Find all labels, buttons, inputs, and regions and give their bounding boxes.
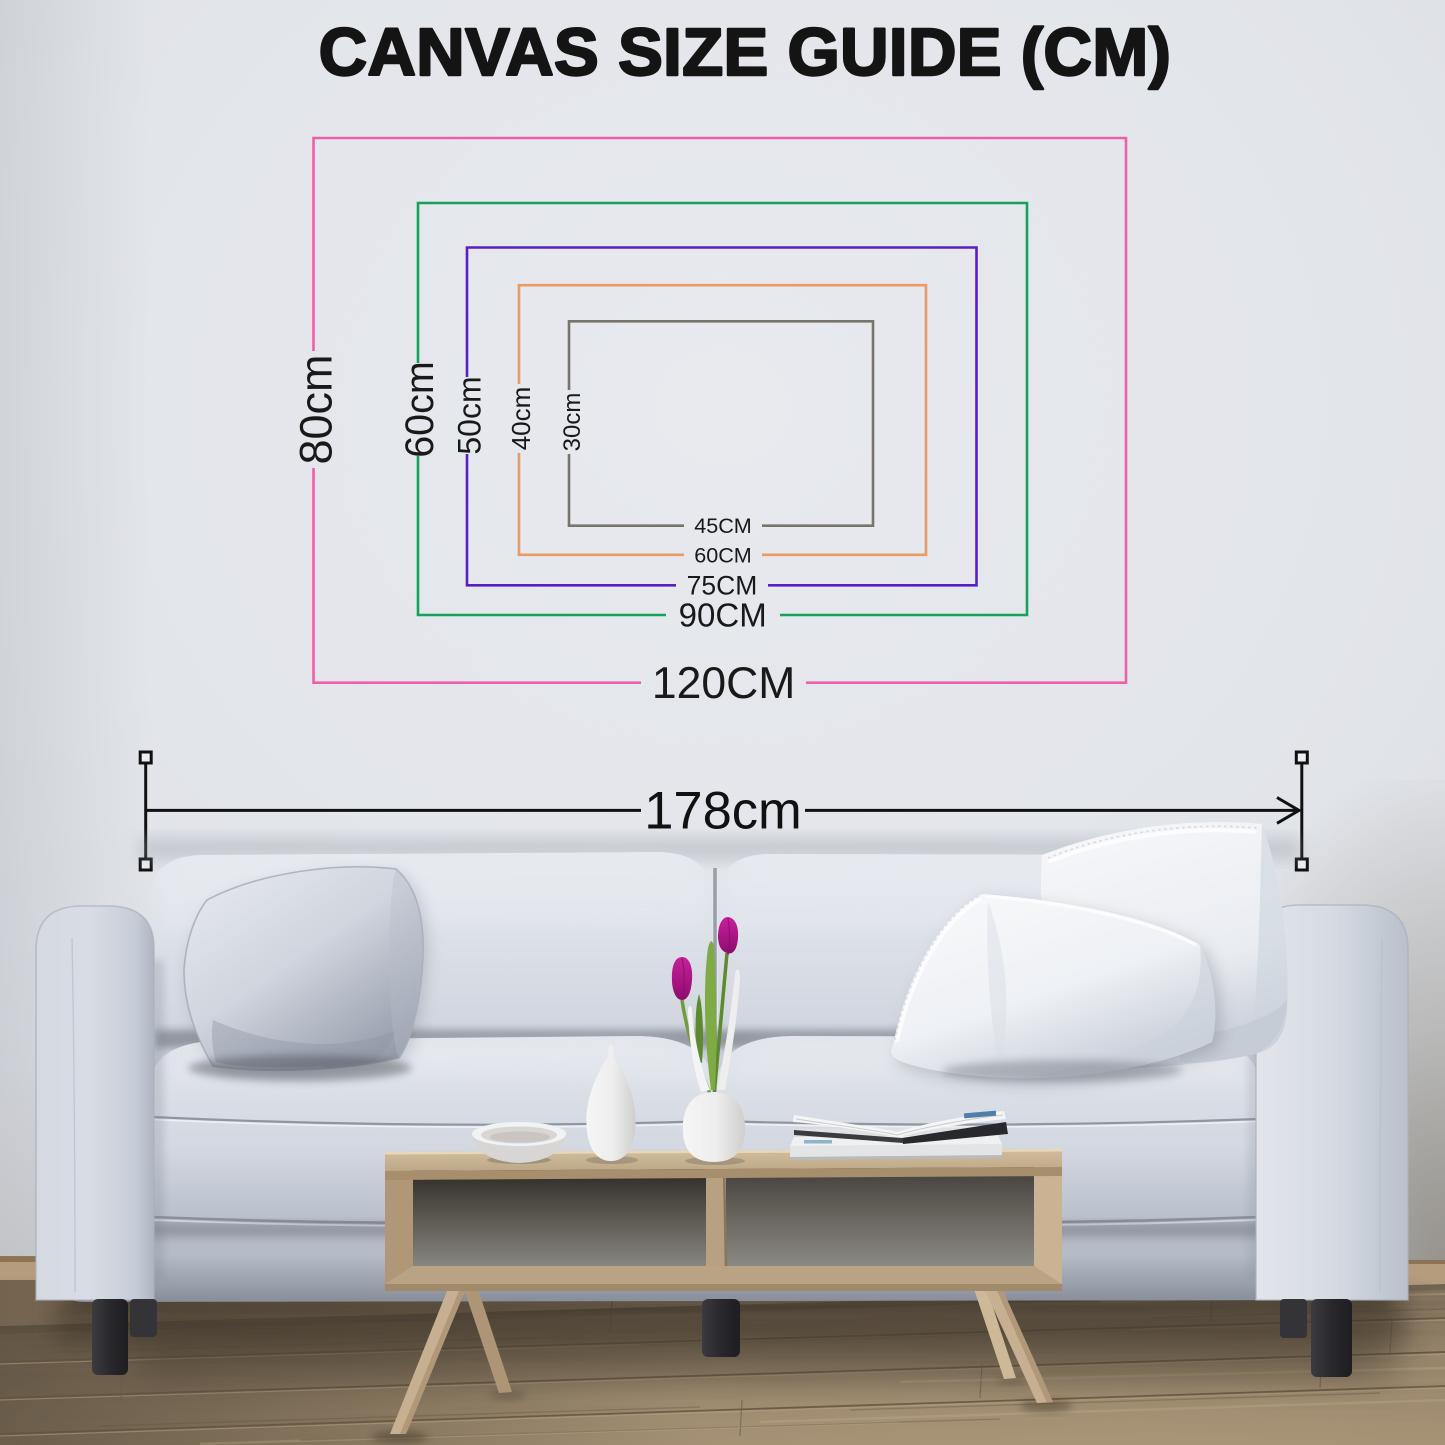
svg-text:60CM: 60CM [694,542,752,567]
svg-text:75CM: 75CM [687,571,758,601]
svg-text:90CM: 90CM [679,596,767,633]
svg-text:178cm: 178cm [644,782,802,841]
svg-text:40cm: 40cm [506,387,536,451]
svg-text:CANVAS SIZE GUIDE (CM): CANVAS SIZE GUIDE (CM) [319,15,1172,90]
svg-text:60cm: 60cm [398,361,442,458]
svg-text:30cm: 30cm [559,393,586,452]
svg-text:80cm: 80cm [291,354,342,464]
svg-text:45CM: 45CM [694,513,752,538]
svg-text:120CM: 120CM [652,659,795,708]
svg-text:50cm: 50cm [452,376,488,454]
